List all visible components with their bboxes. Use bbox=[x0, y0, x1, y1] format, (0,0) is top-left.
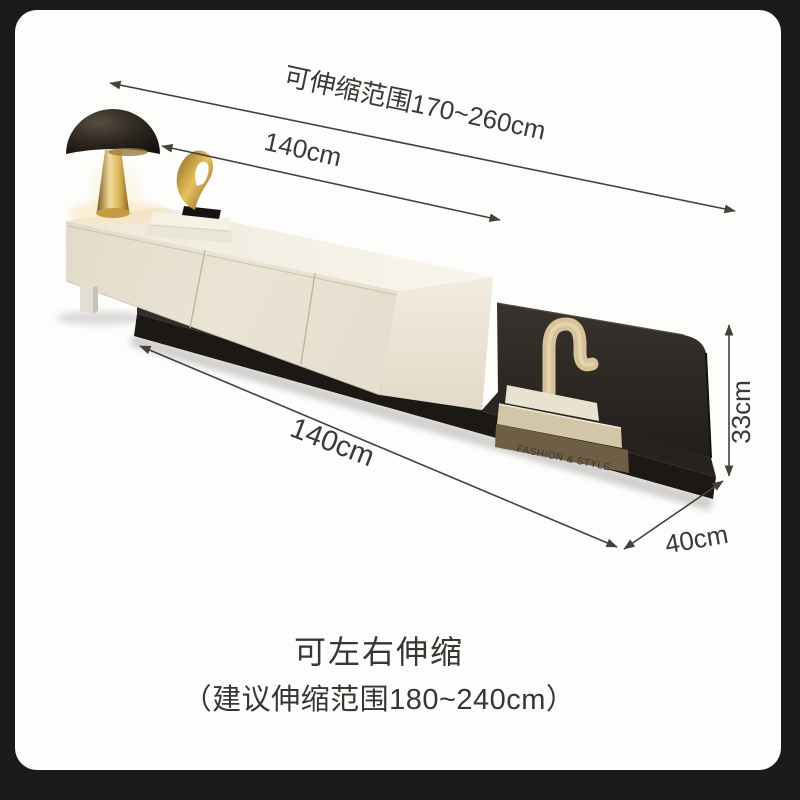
cabinet-leg-side bbox=[93, 286, 98, 314]
label-range-170-260: 可伸缩范围170~260cm bbox=[281, 61, 548, 146]
black-frame: FASHION & STYLE 可伸缩范围170~260cm 140cm 140… bbox=[0, 0, 800, 800]
gold-sculpture bbox=[177, 151, 213, 210]
cabinet-leg-front bbox=[80, 284, 93, 314]
mushroom-lamp bbox=[66, 109, 168, 225]
label-height-33: 33cm bbox=[726, 380, 756, 444]
label-top-140: 140cm bbox=[262, 126, 345, 172]
lamp-stem bbox=[97, 150, 129, 215]
lamp-cap-underglow bbox=[108, 148, 148, 156]
label-depth-40: 40cm bbox=[663, 519, 731, 560]
cabinet-left-shadow bbox=[56, 311, 144, 325]
lamp-cap bbox=[66, 109, 160, 154]
lamp-base bbox=[96, 208, 130, 218]
caption-suggested-range: （建议伸缩范围180~240cm） bbox=[183, 676, 576, 718]
gold-sculpture-books bbox=[145, 151, 233, 243]
label-bottom-140: 140cm bbox=[286, 412, 379, 473]
caption-extendable: 可左右伸缩 bbox=[294, 627, 464, 673]
